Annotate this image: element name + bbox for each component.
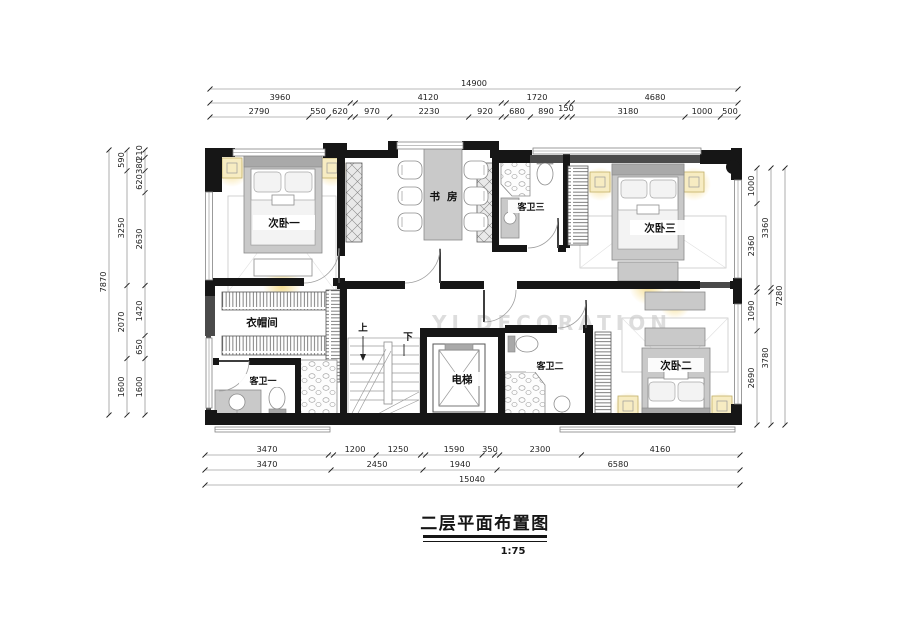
drawing-title: 二层平面布置图 xyxy=(420,513,550,534)
dim: 1420 xyxy=(134,301,144,322)
dim-top-total: 14900 xyxy=(461,78,487,88)
dim: 3780 xyxy=(760,348,770,369)
dim: 550 xyxy=(310,106,326,116)
dim: 3470 xyxy=(257,444,278,454)
floor-plan-drawing: YI DECORATION xyxy=(0,0,900,632)
bedroom3-label: 次卧三 xyxy=(644,222,676,235)
bedroom2-label: 次卧二 xyxy=(660,359,692,372)
dim: 2360 xyxy=(746,236,756,257)
dim: 2630 xyxy=(134,229,144,250)
elevator-label: 电梯 xyxy=(452,373,473,386)
dim: 2230 xyxy=(419,106,440,116)
dim: 1590 xyxy=(444,444,465,454)
bath1-label: 客卫一 xyxy=(248,375,276,387)
dim: 4680 xyxy=(645,92,666,102)
dim: 1250 xyxy=(388,444,409,454)
dim: 1200 xyxy=(345,444,366,454)
dim: 150 xyxy=(558,103,574,113)
drawing-scale: 1:75 xyxy=(501,546,526,557)
dim: 3960 xyxy=(270,92,291,102)
dim: 500 xyxy=(722,106,738,116)
dim: 4120 xyxy=(418,92,439,102)
dim: 920 xyxy=(477,106,493,116)
dim: 890 xyxy=(538,106,554,116)
dim: 2790 xyxy=(249,106,270,116)
dim: 2070 xyxy=(116,312,126,333)
bath3-fixtures xyxy=(501,158,553,238)
dim: 1720 xyxy=(527,92,548,102)
bath2-fixtures xyxy=(505,336,570,417)
dim: 6580 xyxy=(608,459,629,469)
title-underline-thick xyxy=(423,535,547,538)
dimensions-top: 14900 3960 4120 1720 4680 2790 550 620 9… xyxy=(208,78,741,120)
dim: 590 xyxy=(116,152,126,168)
dim: 620 xyxy=(134,174,144,190)
dim: 970 xyxy=(364,106,380,116)
dim: 2300 xyxy=(530,444,551,454)
dim: 1940 xyxy=(450,459,471,469)
dim: 680 xyxy=(509,106,525,116)
dim: 2450 xyxy=(367,459,388,469)
staircase: 上 下 xyxy=(348,322,420,417)
dim: 3250 xyxy=(116,218,126,239)
dim: 650 xyxy=(134,339,144,355)
dim: 1600 xyxy=(134,377,144,398)
dim: 380 xyxy=(134,158,144,174)
dim-bottom-total: 15040 xyxy=(459,474,485,484)
title-block: 二层平面布置图 1:75 xyxy=(420,513,550,557)
cloakroom-label: 衣帽间 xyxy=(246,316,278,329)
bath3-door xyxy=(528,218,558,248)
dim: 1600 xyxy=(116,377,126,398)
dim: 3360 xyxy=(760,218,770,239)
dim: 2690 xyxy=(746,368,756,389)
dim: 4160 xyxy=(650,444,671,454)
dim-left-total: 7870 xyxy=(98,272,108,293)
bath3-label: 客卫三 xyxy=(516,201,544,213)
dim: 1000 xyxy=(746,176,756,197)
bath2-label: 客卫二 xyxy=(535,360,563,372)
dim: 1000 xyxy=(692,106,713,116)
study-label: 书房 xyxy=(430,190,465,203)
dim-right-total: 7280 xyxy=(774,286,784,307)
dim: 3470 xyxy=(257,459,278,469)
dim: 3180 xyxy=(618,106,639,116)
dim: 620 xyxy=(332,106,348,116)
stairs-up-label: 上 xyxy=(358,322,368,334)
dimensions-left: 7870 590 3250 2070 1600 210 380 620 2630… xyxy=(98,145,148,417)
dim: 350 xyxy=(482,444,498,454)
floor-plan-page: YI DECORATION xyxy=(0,0,900,632)
dimensions-right: 1000 2360 1090 2690 3360 3780 7280 xyxy=(746,166,788,428)
bedroom1-label: 次卧一 xyxy=(268,217,300,230)
study-furniture xyxy=(346,148,493,242)
stairs-down-label: 下 xyxy=(403,332,413,343)
dim: 1090 xyxy=(746,301,756,322)
dimensions-bottom: 3470 1200 1250 1590 350 2300 4160 3470 2… xyxy=(203,444,743,488)
study-door xyxy=(405,248,440,283)
bath1-fixtures xyxy=(215,360,337,417)
